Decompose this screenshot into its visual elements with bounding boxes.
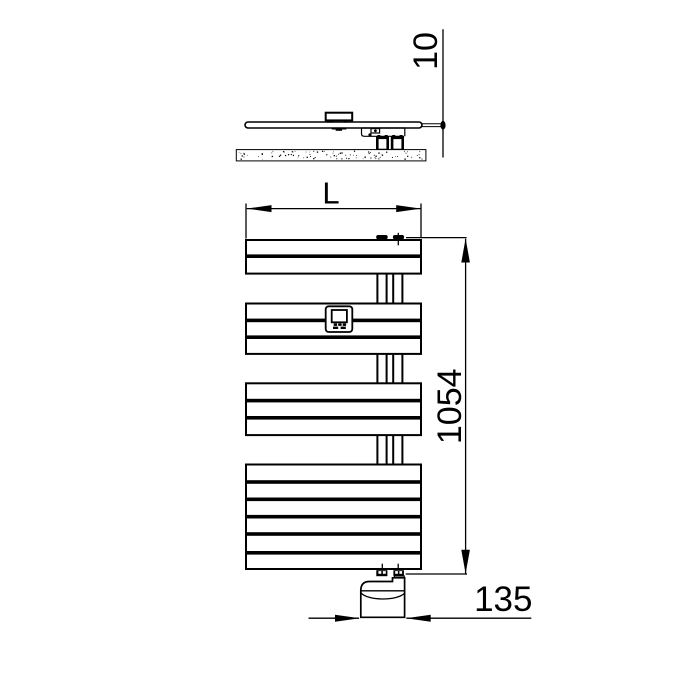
svg-text:1054: 1054 [431,368,469,444]
svg-text:10: 10 [407,32,445,70]
svg-text:135: 135 [474,580,532,619]
svg-text:L: L [322,176,339,211]
